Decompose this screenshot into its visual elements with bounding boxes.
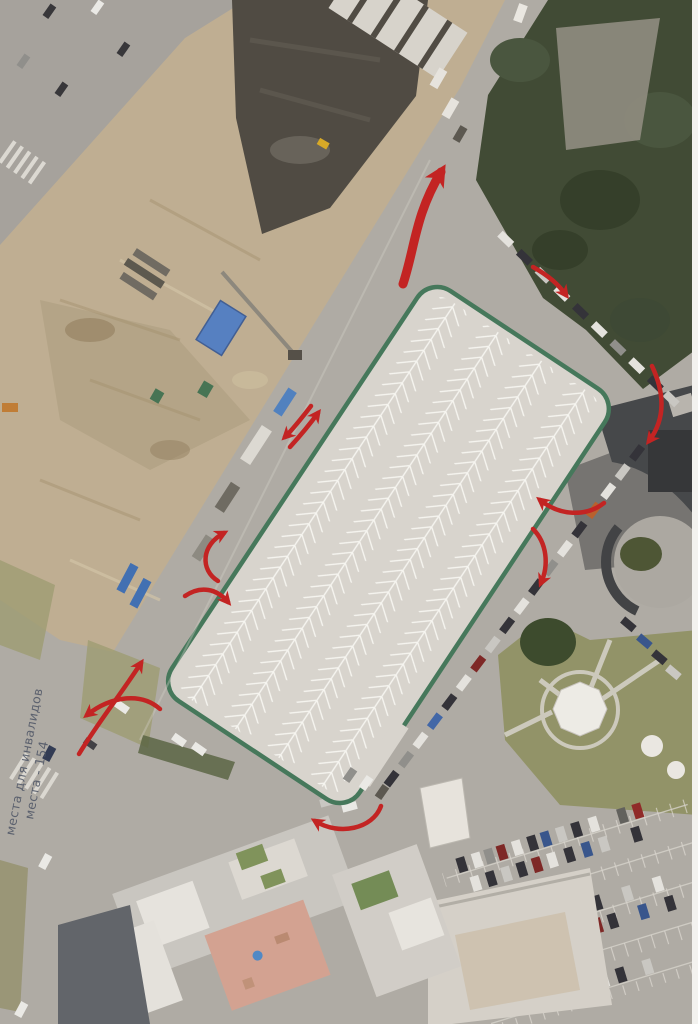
photo-edge-strip xyxy=(692,0,698,1024)
aerial-photo: места для инвалидов места - 154 xyxy=(0,0,698,1024)
aerial-photo-plan: места для инвалидов места - 154 xyxy=(0,0,698,1024)
photo-tint xyxy=(0,0,698,1024)
